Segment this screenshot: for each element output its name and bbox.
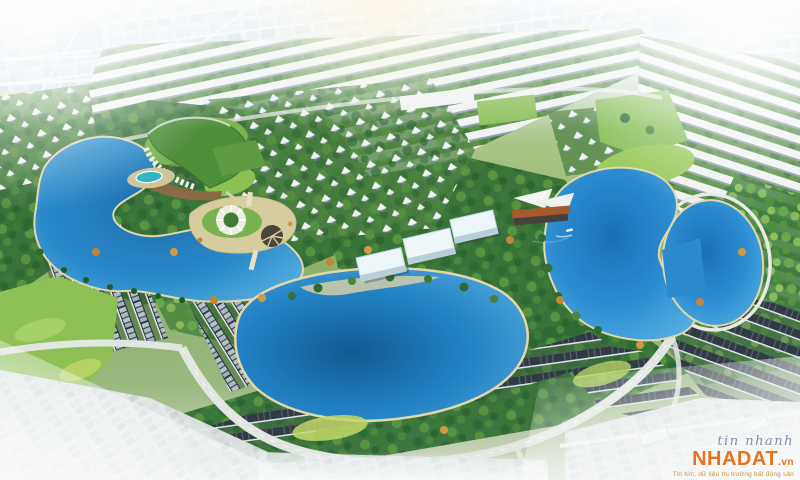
plaza-center-garden xyxy=(224,213,239,228)
fade-bottom-center xyxy=(258,452,548,480)
masterplan-svg xyxy=(0,0,800,480)
island-shrub xyxy=(288,222,293,227)
watermark-tagline: Tin tức, dữ liệu thị trường bất động sản xyxy=(673,471,794,478)
island-shrub xyxy=(198,238,203,243)
aerial-rendering: tin nhanh NHADAT.vn Tin tức, dữ liệu thị… xyxy=(0,0,800,480)
watermark-site-name: tin nhanh xyxy=(673,435,794,449)
watermark: tin nhanh NHADAT.vn Tin tức, dữ liệu thị… xyxy=(673,435,794,478)
watermark-brand-text: NHADAT xyxy=(692,448,778,470)
watermark-domain-suffix: .vn xyxy=(778,457,794,468)
watermark-brand: NHADAT.vn xyxy=(673,449,794,471)
